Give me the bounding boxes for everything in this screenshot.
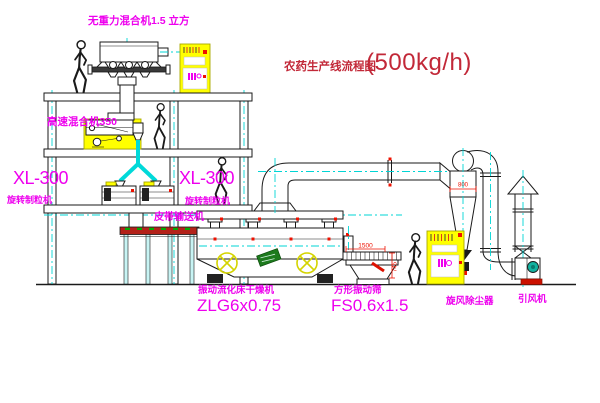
label-gravity-free-mixer: 无重力混合机1.5 立方 — [87, 14, 190, 27]
label-fan: 引风机 — [518, 293, 547, 305]
label-dryer-model: ZLG6x0.75 — [197, 296, 281, 315]
induced-draft-fan — [512, 258, 542, 285]
label-sieve-name: 方形振动筛 — [334, 284, 382, 296]
diagram-canvas: 800 — [0, 0, 600, 403]
person-on-roof — [74, 41, 86, 93]
label-xl300-right: XL-300 — [179, 168, 235, 188]
label-dryer-name: 振动流化床干燥机 — [198, 284, 275, 296]
vibrating-sieve: 1500 745 — [343, 226, 401, 285]
person-floor-2 — [154, 104, 164, 149]
sieve-length-dimension: 1500 — [358, 243, 373, 250]
cad-process-flow-drawing: 800 — [0, 0, 600, 403]
sieve-height-dimension: 745 — [393, 261, 399, 272]
control-cabinet-bottom — [427, 231, 464, 284]
label-cyclone: 旋风除尘器 — [445, 295, 494, 307]
belt-conveyor — [120, 227, 199, 284]
drawing-title: 农药生产线流程图 — [283, 59, 376, 73]
label-sieve-model: FS0.6x1.5 — [331, 296, 409, 315]
fluid-bed-dryer — [197, 203, 343, 283]
label-granulator-right: 旋转制粒机 — [184, 195, 230, 206]
label-xl300-left: XL-300 — [13, 168, 69, 188]
person-ground — [409, 234, 421, 284]
label-belt-conveyor: 皮带输送机 — [153, 210, 204, 223]
label-high-speed-mixer: 高速混合机350 — [47, 115, 117, 128]
label-granulator-left: 旋转制粒机 — [6, 194, 52, 205]
control-cabinet-top — [178, 44, 212, 93]
floor-discharge-chute — [129, 213, 143, 228]
drawing-title-capacity: (500kg/h) — [366, 49, 472, 76]
downcomer-pipe — [467, 151, 517, 276]
